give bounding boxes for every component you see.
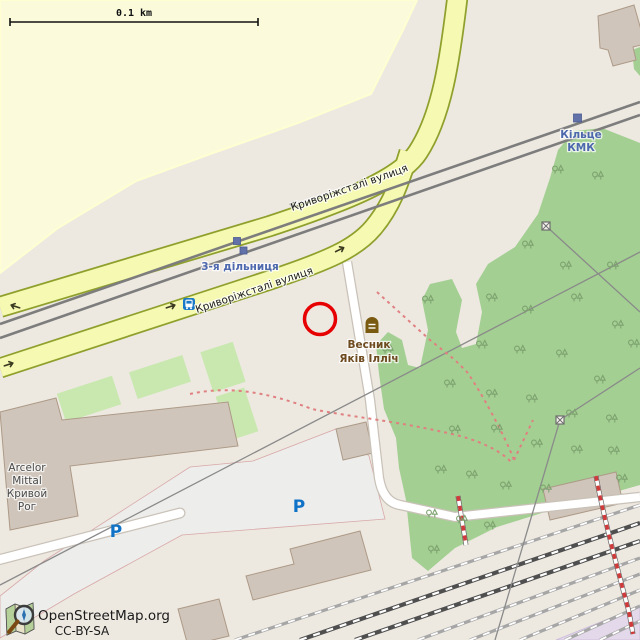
factory-label-line4: Рог — [18, 501, 36, 513]
tram-stop-square — [234, 238, 241, 245]
factory-label-line2: Mittal — [12, 475, 42, 487]
map-canvas[interactable]: Криворіжсталі вулиця Криворіжсталі вулиц… — [0, 0, 640, 640]
map-viewport[interactable]: Криворіжсталі вулиця Криворіжсталі вулиц… — [0, 0, 640, 640]
attribution-line2: CC-BY-SA — [55, 624, 110, 638]
factory-label-line3: Кривой — [7, 488, 47, 500]
factory-label-line1: Arcelor — [8, 462, 46, 474]
tram-stop-label: 3-я дільниця — [201, 261, 279, 273]
memorial-label-line1: Весник — [347, 339, 390, 351]
memorial-icon — [366, 317, 379, 333]
osm-logo-icon — [6, 603, 34, 635]
scale-bar-label: 0.1 km — [116, 8, 152, 19]
bus-stop-icon — [183, 298, 195, 310]
parking-symbol-east: P — [293, 497, 305, 517]
memorial-label-line2: Яків Ілліч — [339, 353, 398, 365]
parking-symbol-west: P — [110, 522, 122, 542]
tram-terminus-label-line2: КМК — [567, 142, 595, 154]
tram-stop-square — [240, 247, 247, 254]
tram-stop-square — [574, 114, 582, 122]
building-small — [336, 422, 373, 460]
tram-terminus-label-line1: Кільце — [560, 129, 601, 141]
attribution-line1[interactable]: OpenStreetMap.org — [38, 608, 170, 624]
